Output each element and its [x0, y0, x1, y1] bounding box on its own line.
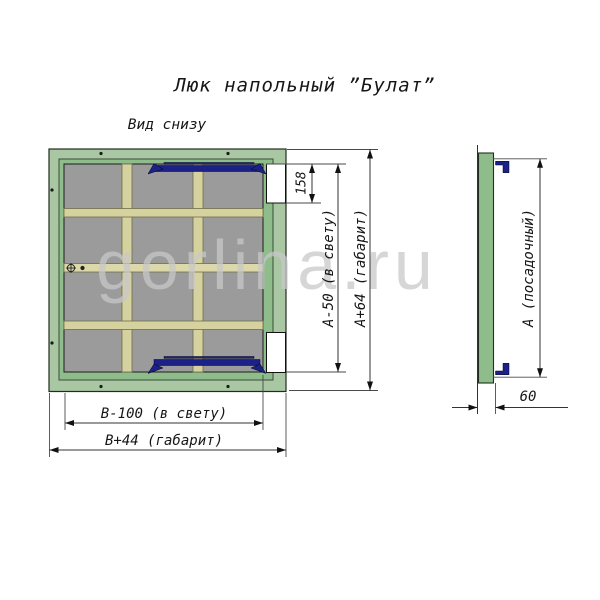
side-top-hinge: [496, 161, 510, 172]
side-frame-profile: [479, 153, 494, 383]
side-view: [452, 145, 568, 414]
side-bottom-hinge: [496, 363, 510, 374]
dim-label-inner-width: В-100 (в свету): [101, 407, 227, 421]
plan-view-label: Вид снизу: [128, 118, 207, 133]
drawing-title: Люк напольный ”Булат”: [174, 77, 435, 96]
dim-label-hinge-offset: 158: [296, 171, 309, 194]
dim-label-outer-height: А+64 (габарит): [354, 209, 368, 327]
watermark: gorlina.ru: [96, 230, 438, 300]
technical-drawing-page: gorlina.ru Люк напольный ”Булат” Вид сни…: [0, 0, 600, 600]
side-dimension-seat: [493, 159, 547, 377]
dim-label-inner-height: А-50 (в свету): [322, 209, 336, 327]
dim-label-seat-height: А (посадочный): [522, 209, 536, 327]
dim-label-thickness: 60: [520, 390, 537, 404]
side-dimension-thickness: [452, 383, 568, 414]
dim-label-outer-width: В+44 (габарит): [105, 434, 223, 448]
